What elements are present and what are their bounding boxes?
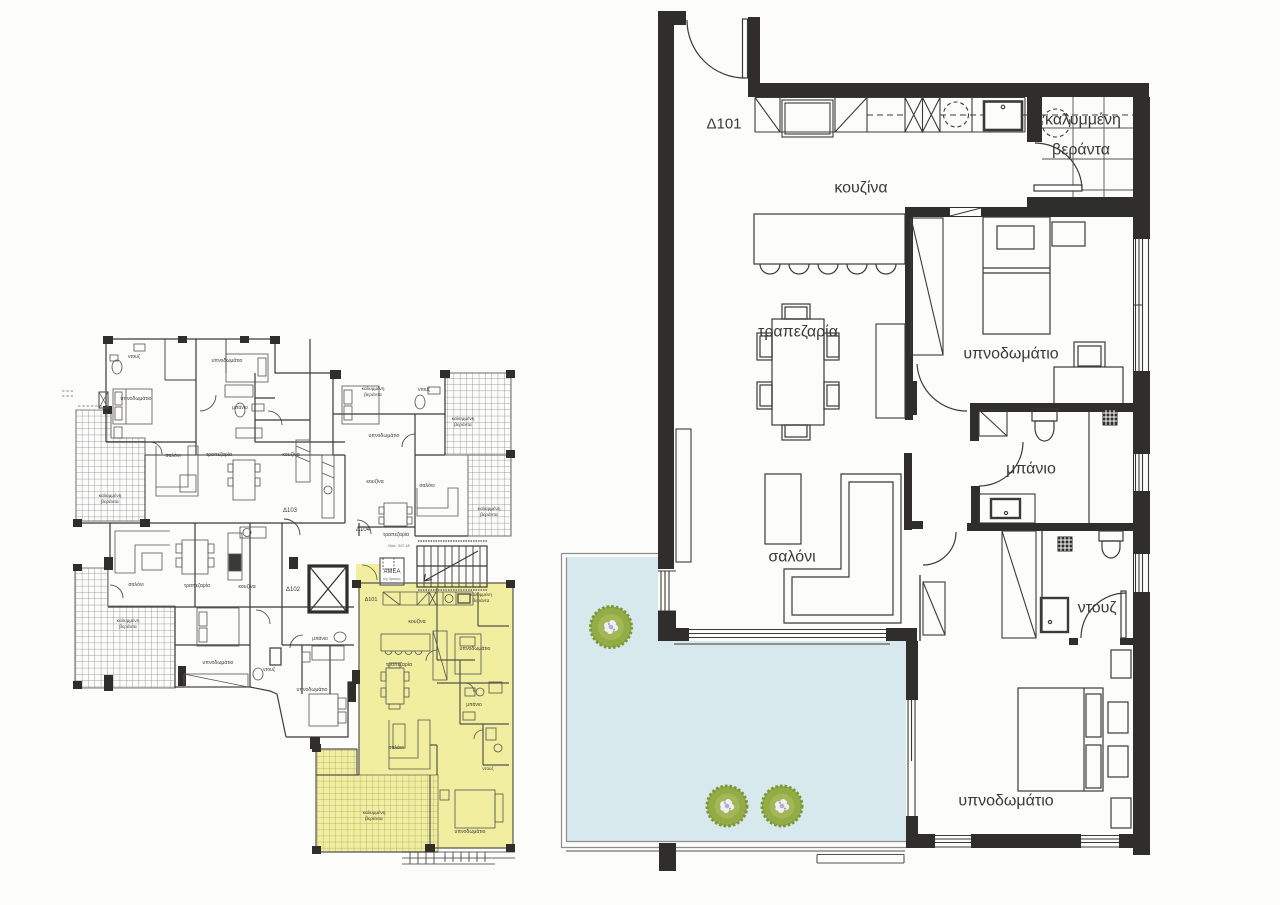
svg-text:της δράσης: της δράσης <box>383 577 401 581</box>
svg-text:καλυμμένη: καλυμμένη <box>362 385 385 392</box>
svg-text:τραπεζαρία: τραπεζαρία <box>184 583 210 589</box>
svg-text:βεράντα: βεράντα <box>101 498 119 505</box>
svg-text:μπάνιο: μπάνιο <box>232 404 248 411</box>
svg-text:τραπεζαρία: τραπεζαρία <box>206 452 232 458</box>
svg-text:Δ101: Δ101 <box>706 116 741 133</box>
svg-text:μπάνιο: μπάνιο <box>312 635 328 642</box>
svg-text:κουζίνα: κουζίνα <box>834 180 887 197</box>
svg-text:βεράντα: βεράντα <box>365 815 383 822</box>
svg-text:καλυμμένη: καλυμμένη <box>478 505 501 512</box>
svg-text:κουζίνα: κουζίνα <box>366 479 383 485</box>
svg-text:τραπεζαρία: τραπεζαρία <box>383 532 409 538</box>
svg-text:κουζίνα: κουζίνα <box>408 619 425 625</box>
svg-text:ντουζ: ντουζ <box>263 667 276 673</box>
svg-text:καλυμμένη: καλυμμένη <box>452 415 475 422</box>
svg-text:ντουζ: ντουζ <box>418 387 431 393</box>
svg-text:μπάνιο: μπάνιο <box>1006 461 1056 478</box>
svg-text:καλυμμένη: καλυμμένη <box>117 617 140 624</box>
svg-text:καλυμμένη: καλυμμένη <box>1045 112 1121 129</box>
svg-text:ντουζ: ντουζ <box>128 354 141 360</box>
svg-text:βεράντα: βεράντα <box>364 391 382 398</box>
svg-text:Μεσ. Χ/Ο 18: Μεσ. Χ/Ο 18 <box>388 544 409 548</box>
svg-text:σαλόνι: σαλόνι <box>768 549 816 566</box>
svg-text:υπνοδωμάτιο: υπνοδωμάτιο <box>460 645 491 652</box>
svg-text:βεράντα: βεράντα <box>480 511 498 518</box>
svg-text:Δ101: Δ101 <box>365 597 378 603</box>
svg-text:κουζίνα: κουζίνα <box>238 584 255 590</box>
svg-text:υπνοδωμάτιο: υπνοδωμάτιο <box>212 357 243 364</box>
svg-text:βεράντα: βεράντα <box>454 421 472 428</box>
svg-text:τραπεζαρία: τραπεζαρία <box>386 662 412 668</box>
svg-text:βεράντα: βεράντα <box>119 623 137 630</box>
svg-text:καλυμμένη: καλυμμένη <box>99 492 122 499</box>
svg-text:υπνοδωμάτιο: υπνοδωμάτιο <box>963 346 1058 363</box>
svg-text:μπάνιο: μπάνιο <box>466 701 482 708</box>
svg-text:σαλόνι: σαλόνι <box>165 452 180 459</box>
svg-text:καλυμμένη: καλυμμένη <box>470 591 492 597</box>
svg-text:τραπεζαρία: τραπεζαρία <box>758 324 838 341</box>
svg-text:σαλόνι: σαλόνι <box>388 744 403 751</box>
svg-text:Δ104: Δ104 <box>356 527 371 533</box>
svg-text:ντουζ: ντουζ <box>1078 600 1117 617</box>
svg-text:υπνοδωμάτιο: υπνοδωμάτιο <box>958 793 1053 810</box>
svg-text:υπνοδωμάτιο: υπνοδωμάτιο <box>203 659 234 666</box>
svg-text:σαλόνι: σαλόνι <box>419 482 434 489</box>
svg-text:ΑΜΕΑ: ΑΜΕΑ <box>383 569 400 575</box>
svg-text:υπνοδωμάτιο: υπνοδωμάτιο <box>369 432 400 439</box>
svg-text:βεράντα: βεράντα <box>1052 142 1110 159</box>
svg-text:υπνοδωμάτιο: υπνοδωμάτιο <box>297 686 328 693</box>
svg-text:υπνοδωμάτιο: υπνοδωμάτιο <box>121 395 152 402</box>
svg-text:Δ103: Δ103 <box>283 508 298 514</box>
svg-text:σαλόνι: σαλόνι <box>128 581 143 588</box>
svg-text:υπνοδωμάτιο: υπνοδωμάτιο <box>455 828 486 835</box>
svg-text:κουζίνα: κουζίνα <box>282 452 299 458</box>
svg-text:βεράντα: βεράντα <box>473 597 490 603</box>
svg-text:καλυμμένη: καλυμμένη <box>363 809 386 816</box>
svg-text:Δ102: Δ102 <box>286 587 301 593</box>
